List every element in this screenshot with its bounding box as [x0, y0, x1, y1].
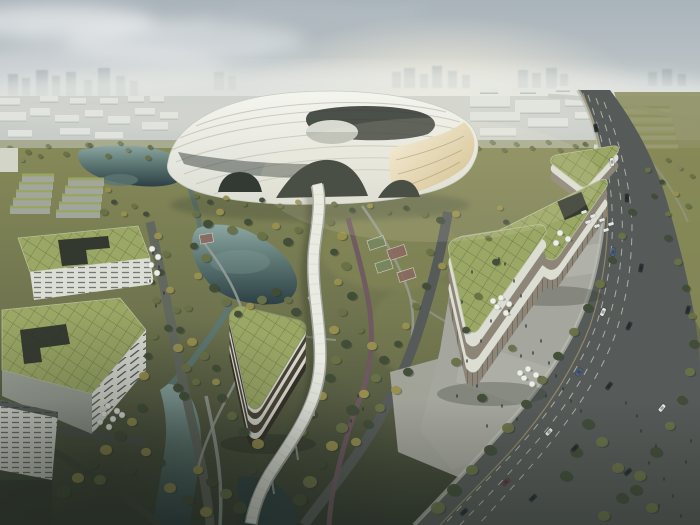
distant-building-shadow	[528, 127, 568, 129]
person	[471, 270, 472, 273]
tree	[162, 251, 170, 258]
tree	[391, 386, 401, 395]
tree	[88, 143, 93, 147]
tree	[651, 193, 657, 198]
tree	[209, 284, 219, 293]
tree	[608, 257, 616, 264]
tree	[259, 197, 265, 202]
person	[508, 309, 509, 312]
tree	[166, 287, 174, 294]
tree	[172, 307, 180, 314]
person	[540, 339, 541, 342]
tree	[227, 226, 237, 235]
rendering-canvas	[0, 0, 700, 525]
umbrella	[154, 270, 160, 276]
distant-building-shadow	[70, 104, 86, 106]
umbrella	[557, 230, 563, 236]
car	[609, 157, 615, 167]
distant-building-shadow	[8, 137, 32, 139]
terrace-floor	[56, 212, 100, 218]
tree	[234, 311, 242, 318]
tree	[379, 356, 389, 365]
tree	[148, 145, 153, 149]
umbrella	[503, 310, 509, 316]
person	[152, 251, 153, 254]
umbrella	[553, 240, 559, 246]
tree	[126, 148, 131, 152]
tree	[244, 219, 252, 226]
tree	[685, 368, 695, 377]
terrace-floor	[65, 188, 103, 194]
tree	[426, 249, 434, 256]
tree	[291, 308, 301, 317]
car-cabin	[626, 196, 629, 199]
west-tower	[0, 148, 18, 172]
tree	[193, 193, 199, 198]
terrace-floor	[22, 176, 54, 182]
tree	[38, 154, 43, 158]
distant-building-shadow	[520, 93, 536, 95]
terrace-floor	[10, 208, 50, 214]
umbrella	[506, 301, 512, 307]
tree	[154, 233, 162, 240]
tree	[334, 279, 342, 286]
person	[158, 265, 159, 268]
tree	[508, 345, 516, 352]
tree	[184, 305, 192, 312]
distant-building-shadow	[95, 139, 123, 141]
distant-building-shadow	[142, 130, 168, 132]
person	[504, 262, 505, 265]
car	[625, 193, 630, 202]
tree	[118, 141, 123, 145]
terrace-floor	[19, 184, 53, 190]
distant-building-shadow	[55, 122, 79, 124]
umbrella	[494, 304, 500, 310]
terrace-green-roof	[22, 174, 54, 177]
umbrella	[565, 236, 571, 242]
umbrella	[149, 246, 155, 252]
tree	[664, 235, 672, 242]
tree	[628, 209, 636, 216]
person	[498, 257, 499, 260]
tree	[666, 158, 671, 162]
terrace-green-roof	[68, 178, 104, 181]
lake-arm	[102, 174, 138, 186]
person	[476, 384, 477, 387]
distant-building-shadow	[60, 135, 90, 137]
distant-building-shadow	[480, 93, 498, 95]
distant-building-shadow	[85, 117, 103, 119]
tree	[665, 211, 671, 216]
tree	[192, 211, 200, 218]
person	[555, 374, 556, 377]
tree	[595, 280, 605, 289]
umbrella	[525, 366, 531, 372]
tree	[330, 249, 338, 256]
tree	[131, 203, 137, 208]
tree	[271, 288, 281, 297]
car-cabin	[611, 160, 614, 164]
distant-building-shadow	[128, 102, 144, 104]
distant-building-shadow	[515, 113, 560, 115]
tree	[685, 203, 691, 208]
distant-building-shadow	[150, 102, 164, 104]
person	[466, 359, 467, 362]
tree	[659, 179, 665, 184]
distant-building-shadow	[30, 116, 50, 118]
tree	[690, 174, 695, 178]
tree	[25, 149, 31, 154]
umbrella	[533, 372, 539, 378]
umbrella	[148, 262, 154, 268]
tree	[207, 199, 213, 204]
tree	[257, 296, 267, 305]
terrace-floor	[16, 192, 52, 198]
tree	[462, 327, 470, 334]
tree	[63, 151, 69, 156]
distant-building-shadow	[470, 107, 510, 109]
tree	[223, 195, 229, 200]
distant-building	[515, 100, 560, 114]
tree	[257, 232, 267, 241]
person	[456, 394, 457, 397]
distant-building-shadow	[0, 121, 26, 123]
person	[155, 304, 156, 307]
terrace-floor	[62, 196, 102, 202]
umbrella	[155, 254, 161, 260]
tree	[367, 342, 377, 351]
sunlight-sweep	[260, 118, 600, 242]
distant-building-shadow	[40, 102, 58, 104]
tree	[246, 303, 254, 310]
foreground-shade	[0, 400, 700, 525]
tree	[583, 304, 593, 313]
tree	[569, 328, 579, 337]
tree	[143, 211, 149, 216]
terrace-floor	[13, 200, 51, 206]
terrace-floor	[59, 204, 101, 210]
person	[149, 279, 150, 282]
tree	[412, 303, 420, 310]
umbrella	[529, 381, 535, 387]
tree	[111, 199, 117, 204]
tree	[190, 243, 198, 250]
person	[532, 351, 533, 354]
sports-court	[199, 233, 213, 244]
tree	[583, 142, 588, 146]
tree	[618, 233, 626, 240]
tree	[272, 223, 280, 230]
tree	[105, 153, 111, 158]
tree	[105, 187, 111, 192]
tree	[553, 352, 563, 361]
tree	[674, 259, 682, 266]
tree	[221, 298, 231, 307]
person	[480, 339, 481, 342]
tree	[682, 285, 690, 292]
distant-building-shadow	[160, 119, 178, 121]
tree	[121, 211, 127, 216]
tree	[100, 209, 108, 216]
person	[461, 300, 462, 303]
distant-building-shadow	[556, 91, 570, 93]
architectural-rendering	[0, 0, 700, 525]
tree	[347, 292, 357, 301]
tree	[194, 273, 202, 280]
tree	[451, 358, 461, 367]
person	[562, 387, 563, 390]
tree	[284, 297, 292, 304]
tree	[203, 220, 213, 229]
tree	[341, 262, 351, 271]
person	[525, 324, 526, 327]
person	[163, 291, 164, 294]
tree	[438, 263, 446, 270]
tree	[337, 308, 347, 317]
tree	[402, 323, 410, 330]
distant-building-shadow	[0, 105, 20, 107]
tree	[20, 158, 25, 162]
tree	[329, 326, 339, 335]
tree	[46, 144, 51, 148]
person	[548, 361, 549, 364]
tree	[673, 191, 679, 196]
person	[513, 279, 514, 282]
tree	[678, 166, 683, 170]
distant-building-shadow	[100, 104, 118, 106]
terrace-floor	[68, 180, 104, 186]
tree	[145, 155, 151, 160]
tree	[152, 297, 160, 304]
distant-building-shadow	[108, 124, 130, 126]
tree	[201, 254, 211, 263]
tree	[403, 368, 413, 377]
person	[520, 294, 521, 297]
tree	[331, 356, 341, 365]
tree	[241, 201, 247, 206]
tree	[341, 340, 351, 349]
tree	[422, 283, 430, 290]
tree	[371, 374, 381, 383]
umbrella	[498, 295, 504, 301]
tree	[283, 238, 293, 247]
tree	[394, 341, 402, 348]
distant-building	[470, 96, 510, 108]
distant-building-shadow	[135, 115, 155, 117]
tree	[474, 293, 482, 300]
tree	[216, 209, 224, 216]
person	[490, 319, 491, 322]
person	[520, 354, 521, 357]
umbrella	[521, 375, 527, 381]
tree	[645, 167, 651, 172]
tree	[689, 340, 699, 349]
umbrella	[490, 298, 496, 304]
tree	[294, 227, 302, 234]
tree	[356, 327, 364, 334]
person	[545, 394, 546, 397]
umbrella	[517, 370, 523, 376]
